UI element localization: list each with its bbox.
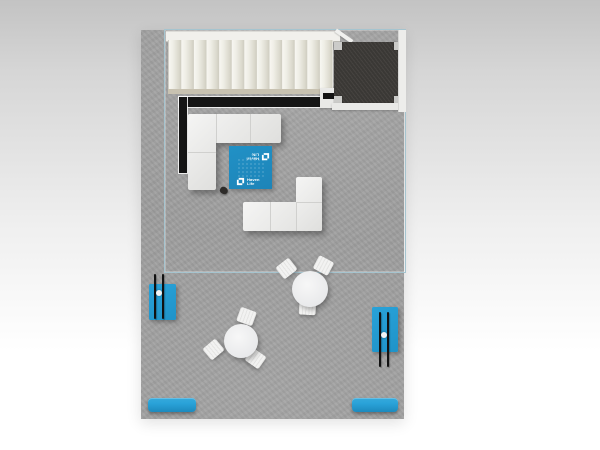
meeting-table bbox=[224, 324, 258, 358]
platform-front-rail bbox=[332, 103, 402, 110]
staircase-treads bbox=[168, 40, 333, 90]
sofa-seam bbox=[216, 114, 217, 143]
sofa-seam bbox=[270, 202, 271, 231]
sofa-seam bbox=[296, 202, 297, 231]
stair-stringer bbox=[168, 89, 332, 94]
kiosk-pole bbox=[154, 274, 156, 319]
kiosk-pole bbox=[387, 312, 389, 367]
logo-text: HavenLife bbox=[247, 153, 260, 161]
kiosk-hub bbox=[156, 290, 162, 296]
sofa-seam bbox=[188, 152, 216, 153]
stair-railing-horizontal bbox=[179, 97, 334, 107]
charging-kiosk-right bbox=[372, 307, 398, 352]
booth-render: HavenLife HavenLife bbox=[0, 0, 600, 450]
havenlife-logo-icon bbox=[261, 152, 270, 161]
bench-left bbox=[148, 398, 196, 412]
havenlife-logo-icon bbox=[236, 177, 245, 186]
kiosk-hub bbox=[381, 332, 387, 338]
havenlife-logo: HavenLife bbox=[236, 174, 272, 189]
kiosk-pole bbox=[379, 312, 381, 367]
brand-rug: HavenLife HavenLife bbox=[229, 146, 272, 189]
platform-corner-post bbox=[334, 42, 342, 50]
bench-right bbox=[352, 398, 398, 412]
havenlife-logo: HavenLife bbox=[234, 149, 270, 164]
meeting-table bbox=[292, 271, 328, 307]
kiosk-pole bbox=[162, 274, 164, 319]
sofa-seat-vertical bbox=[296, 177, 322, 231]
sofa-seam bbox=[296, 202, 322, 203]
mezzanine-platform bbox=[334, 42, 402, 104]
sofa-seam bbox=[250, 114, 251, 143]
logo-text: HavenLife bbox=[247, 178, 260, 186]
right-glass-wall bbox=[398, 30, 406, 112]
stair-railing-vertical bbox=[179, 97, 187, 173]
